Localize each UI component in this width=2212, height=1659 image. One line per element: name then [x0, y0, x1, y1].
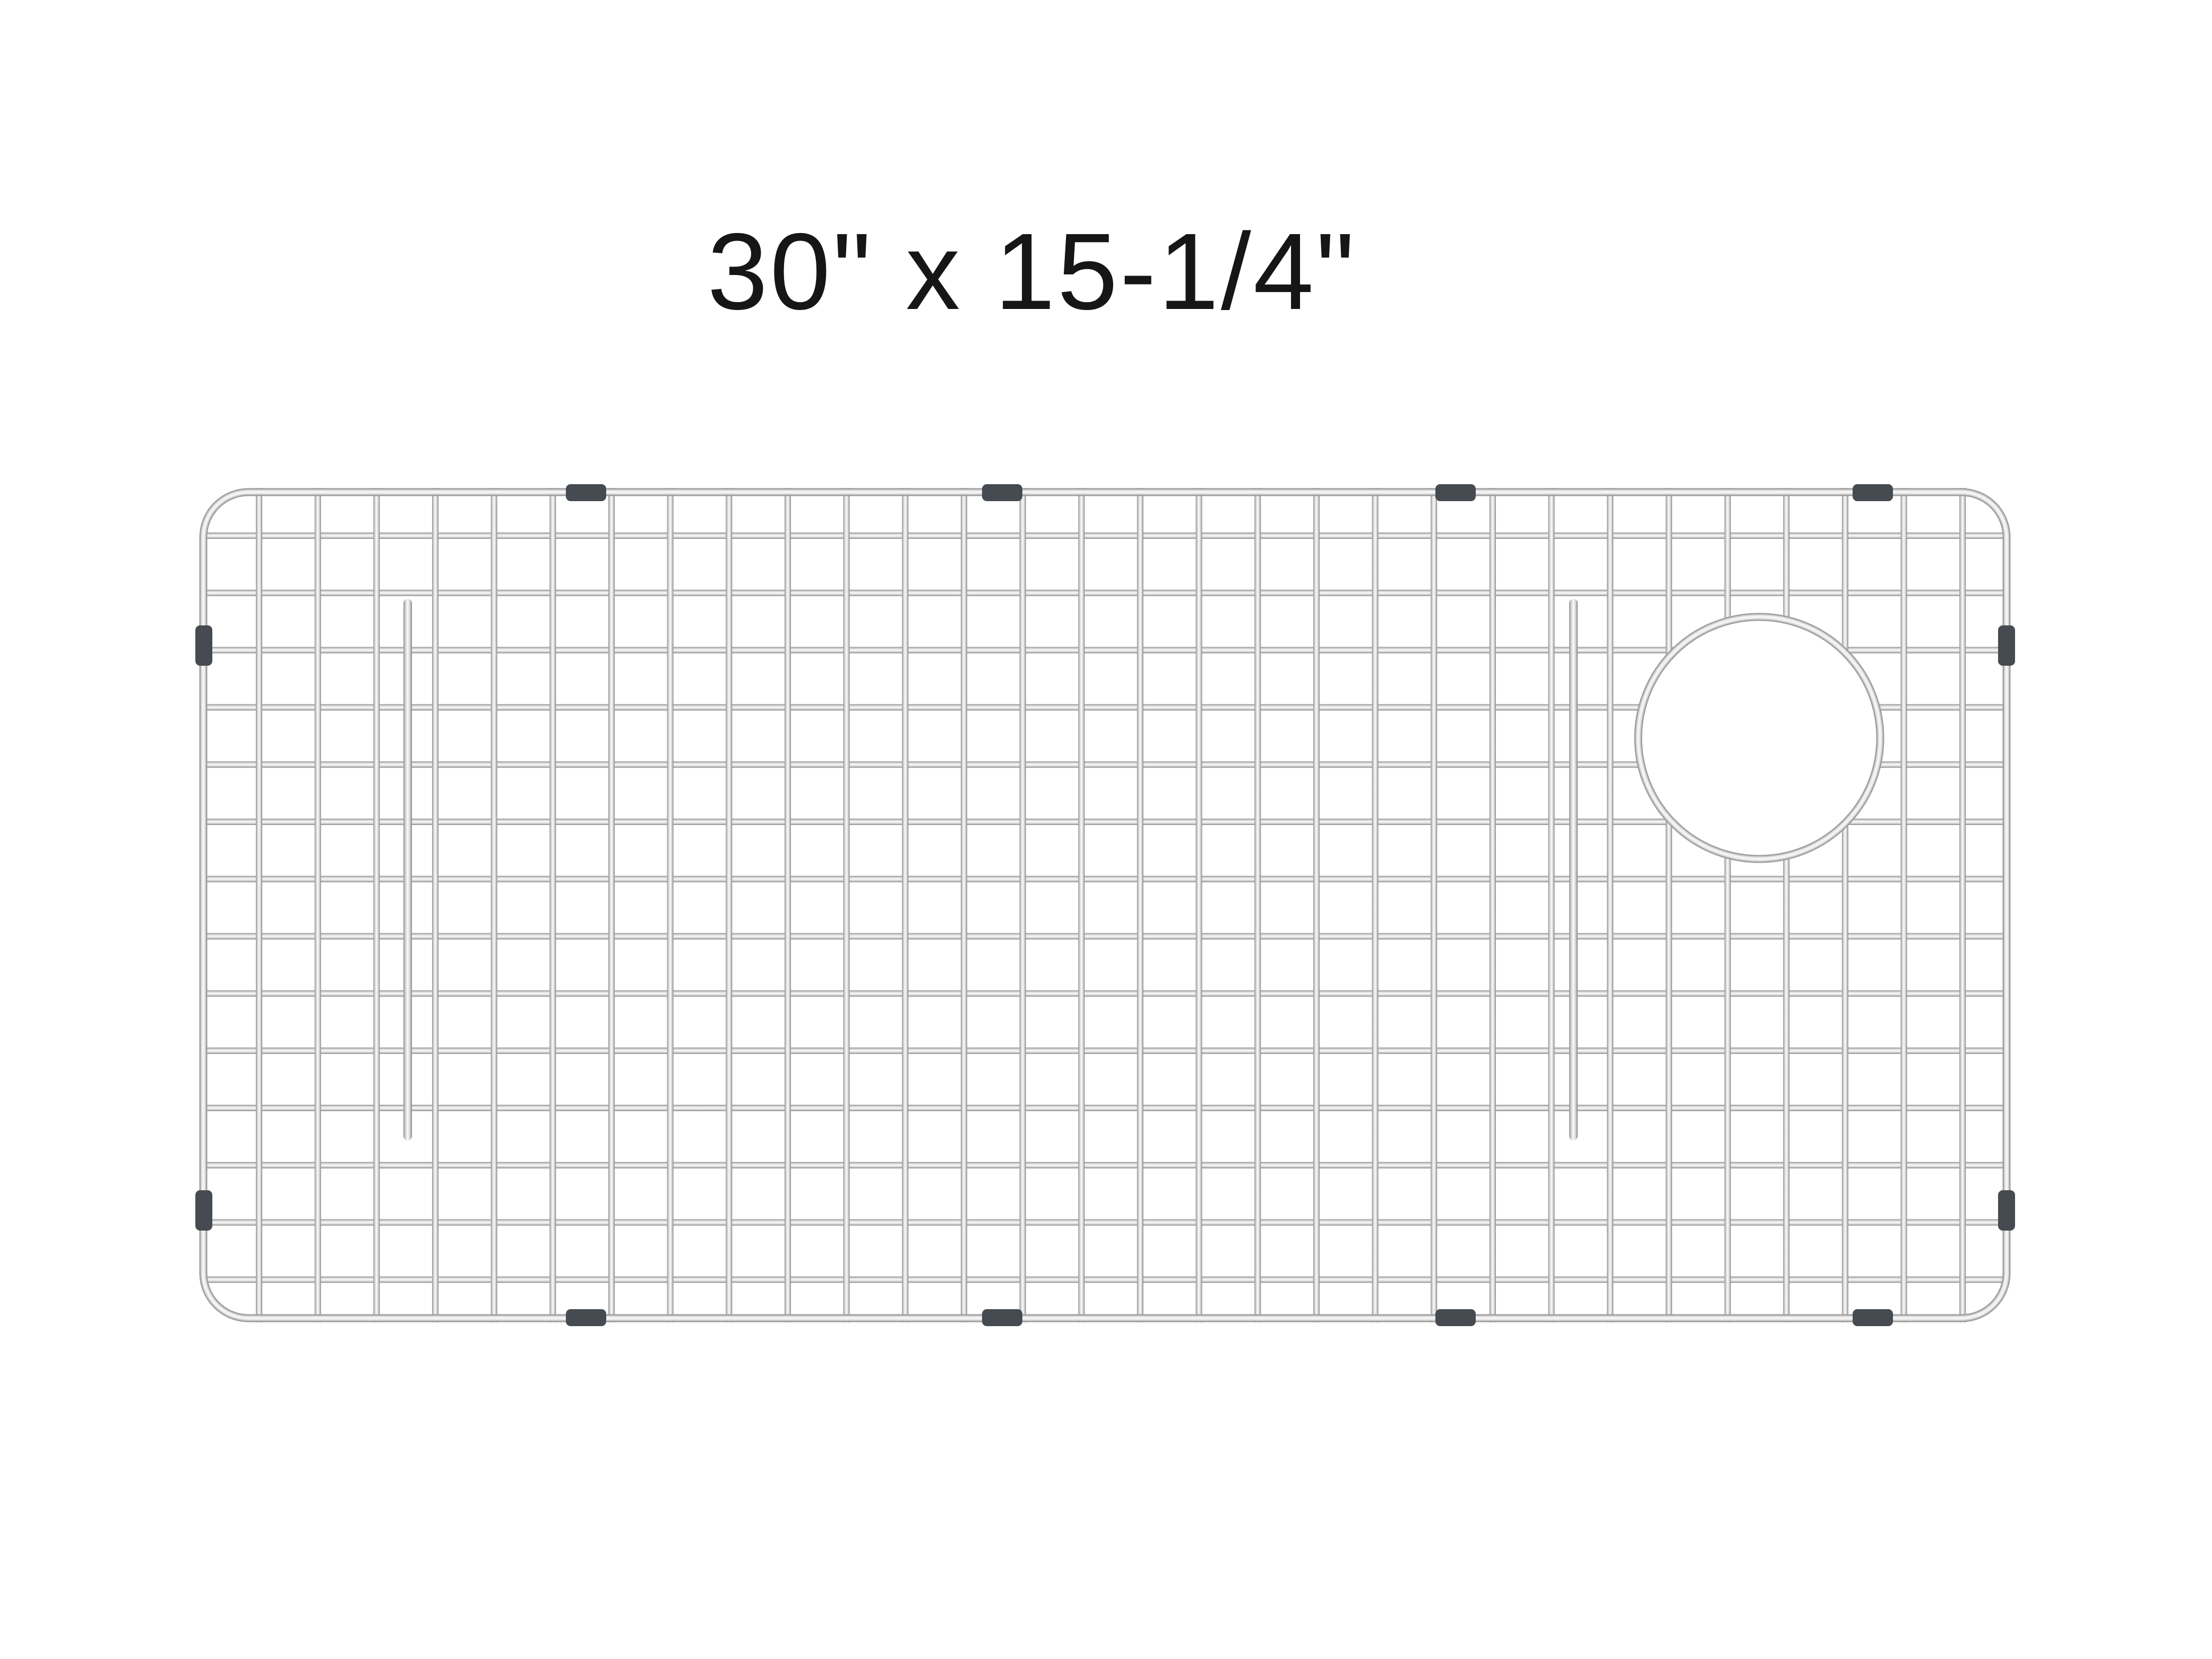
bumper-bottom: [1853, 1309, 1893, 1326]
grid-wire-horizontal: [203, 1276, 2007, 1283]
bumper-bottom: [1435, 1309, 1476, 1326]
support-wire: [403, 599, 412, 1140]
bumper-top: [982, 484, 1022, 501]
grid-wire-horizontal: [203, 819, 2007, 825]
grid-wire-vertical: [1020, 488, 1026, 1322]
bumper-top: [566, 484, 606, 501]
dimensions-label: 30" x 15-1/4": [707, 211, 1356, 332]
product-illustration-canvas: 30" x 15-1/4": [0, 0, 2212, 1659]
grid-wire-horizontal: [203, 1047, 2007, 1054]
bumper-bottom: [982, 1309, 1022, 1326]
grid-wire-vertical: [432, 488, 438, 1322]
grid-wire-vertical: [549, 488, 556, 1322]
grid-wire-horizontal: [203, 1162, 2007, 1168]
grid-wire-vertical: [256, 488, 262, 1322]
grid-wire-vertical: [785, 488, 791, 1322]
grid-wire-vertical: [315, 488, 321, 1322]
grid-wire-horizontal: [203, 933, 2007, 940]
grid-wire-vertical: [1254, 488, 1261, 1322]
mesh-wires-group: [203, 488, 2007, 1322]
support-wire: [1569, 599, 1578, 1140]
grid-wire-horizontal: [203, 704, 2007, 710]
grid-wire-vertical: [491, 488, 497, 1322]
grid-wire-vertical: [373, 488, 380, 1322]
grid-wire-vertical: [902, 488, 908, 1322]
grid-wire-horizontal: [203, 647, 2007, 654]
bumper-right: [1998, 625, 2015, 666]
grid-wire-vertical: [1900, 488, 1907, 1322]
grid-wire-horizontal: [203, 761, 2007, 768]
grid-wire-horizontal: [203, 532, 2007, 539]
grid-wire-horizontal: [203, 1105, 2007, 1111]
bumper-top: [1435, 484, 1476, 501]
bumper-right: [1998, 1190, 2015, 1231]
grid-wire-vertical: [844, 488, 850, 1322]
grid-wire-horizontal: [203, 990, 2007, 996]
grid-wire-vertical: [1372, 488, 1379, 1322]
grid-wire-vertical: [1783, 488, 1789, 1322]
grid-wire-vertical: [1137, 488, 1143, 1322]
grid-wire-vertical: [1078, 488, 1085, 1322]
sink-grid-illustration: 30" x 15-1/4": [0, 0, 2212, 1659]
bumper-top: [1853, 484, 1893, 501]
grid-wire-vertical: [1666, 488, 1672, 1322]
bumper-left: [195, 625, 212, 666]
grid-wire-horizontal: [203, 590, 2007, 596]
grid-wire-vertical: [1196, 488, 1202, 1322]
grid-wire-vertical: [1548, 488, 1555, 1322]
grid-wire-vertical: [1431, 488, 1437, 1322]
grid-wire-horizontal: [203, 876, 2007, 882]
grid-wire-vertical: [1313, 488, 1320, 1322]
grid-wire-vertical: [1607, 488, 1613, 1322]
bumper-left: [195, 1190, 212, 1231]
grid-wire-vertical: [1725, 488, 1731, 1322]
grid-wire-vertical: [667, 488, 674, 1322]
grid-wire-horizontal: [203, 1219, 2007, 1226]
sink-grid-group: [195, 484, 2015, 1326]
grid-wire-vertical: [1490, 488, 1496, 1322]
bumper-bottom: [566, 1309, 606, 1326]
grid-wire-vertical: [961, 488, 967, 1322]
grid-wire-vertical: [1959, 488, 1966, 1322]
grid-wire-vertical: [608, 488, 615, 1322]
grid-wire-vertical: [726, 488, 732, 1322]
grid-wire-vertical: [1842, 488, 1848, 1322]
